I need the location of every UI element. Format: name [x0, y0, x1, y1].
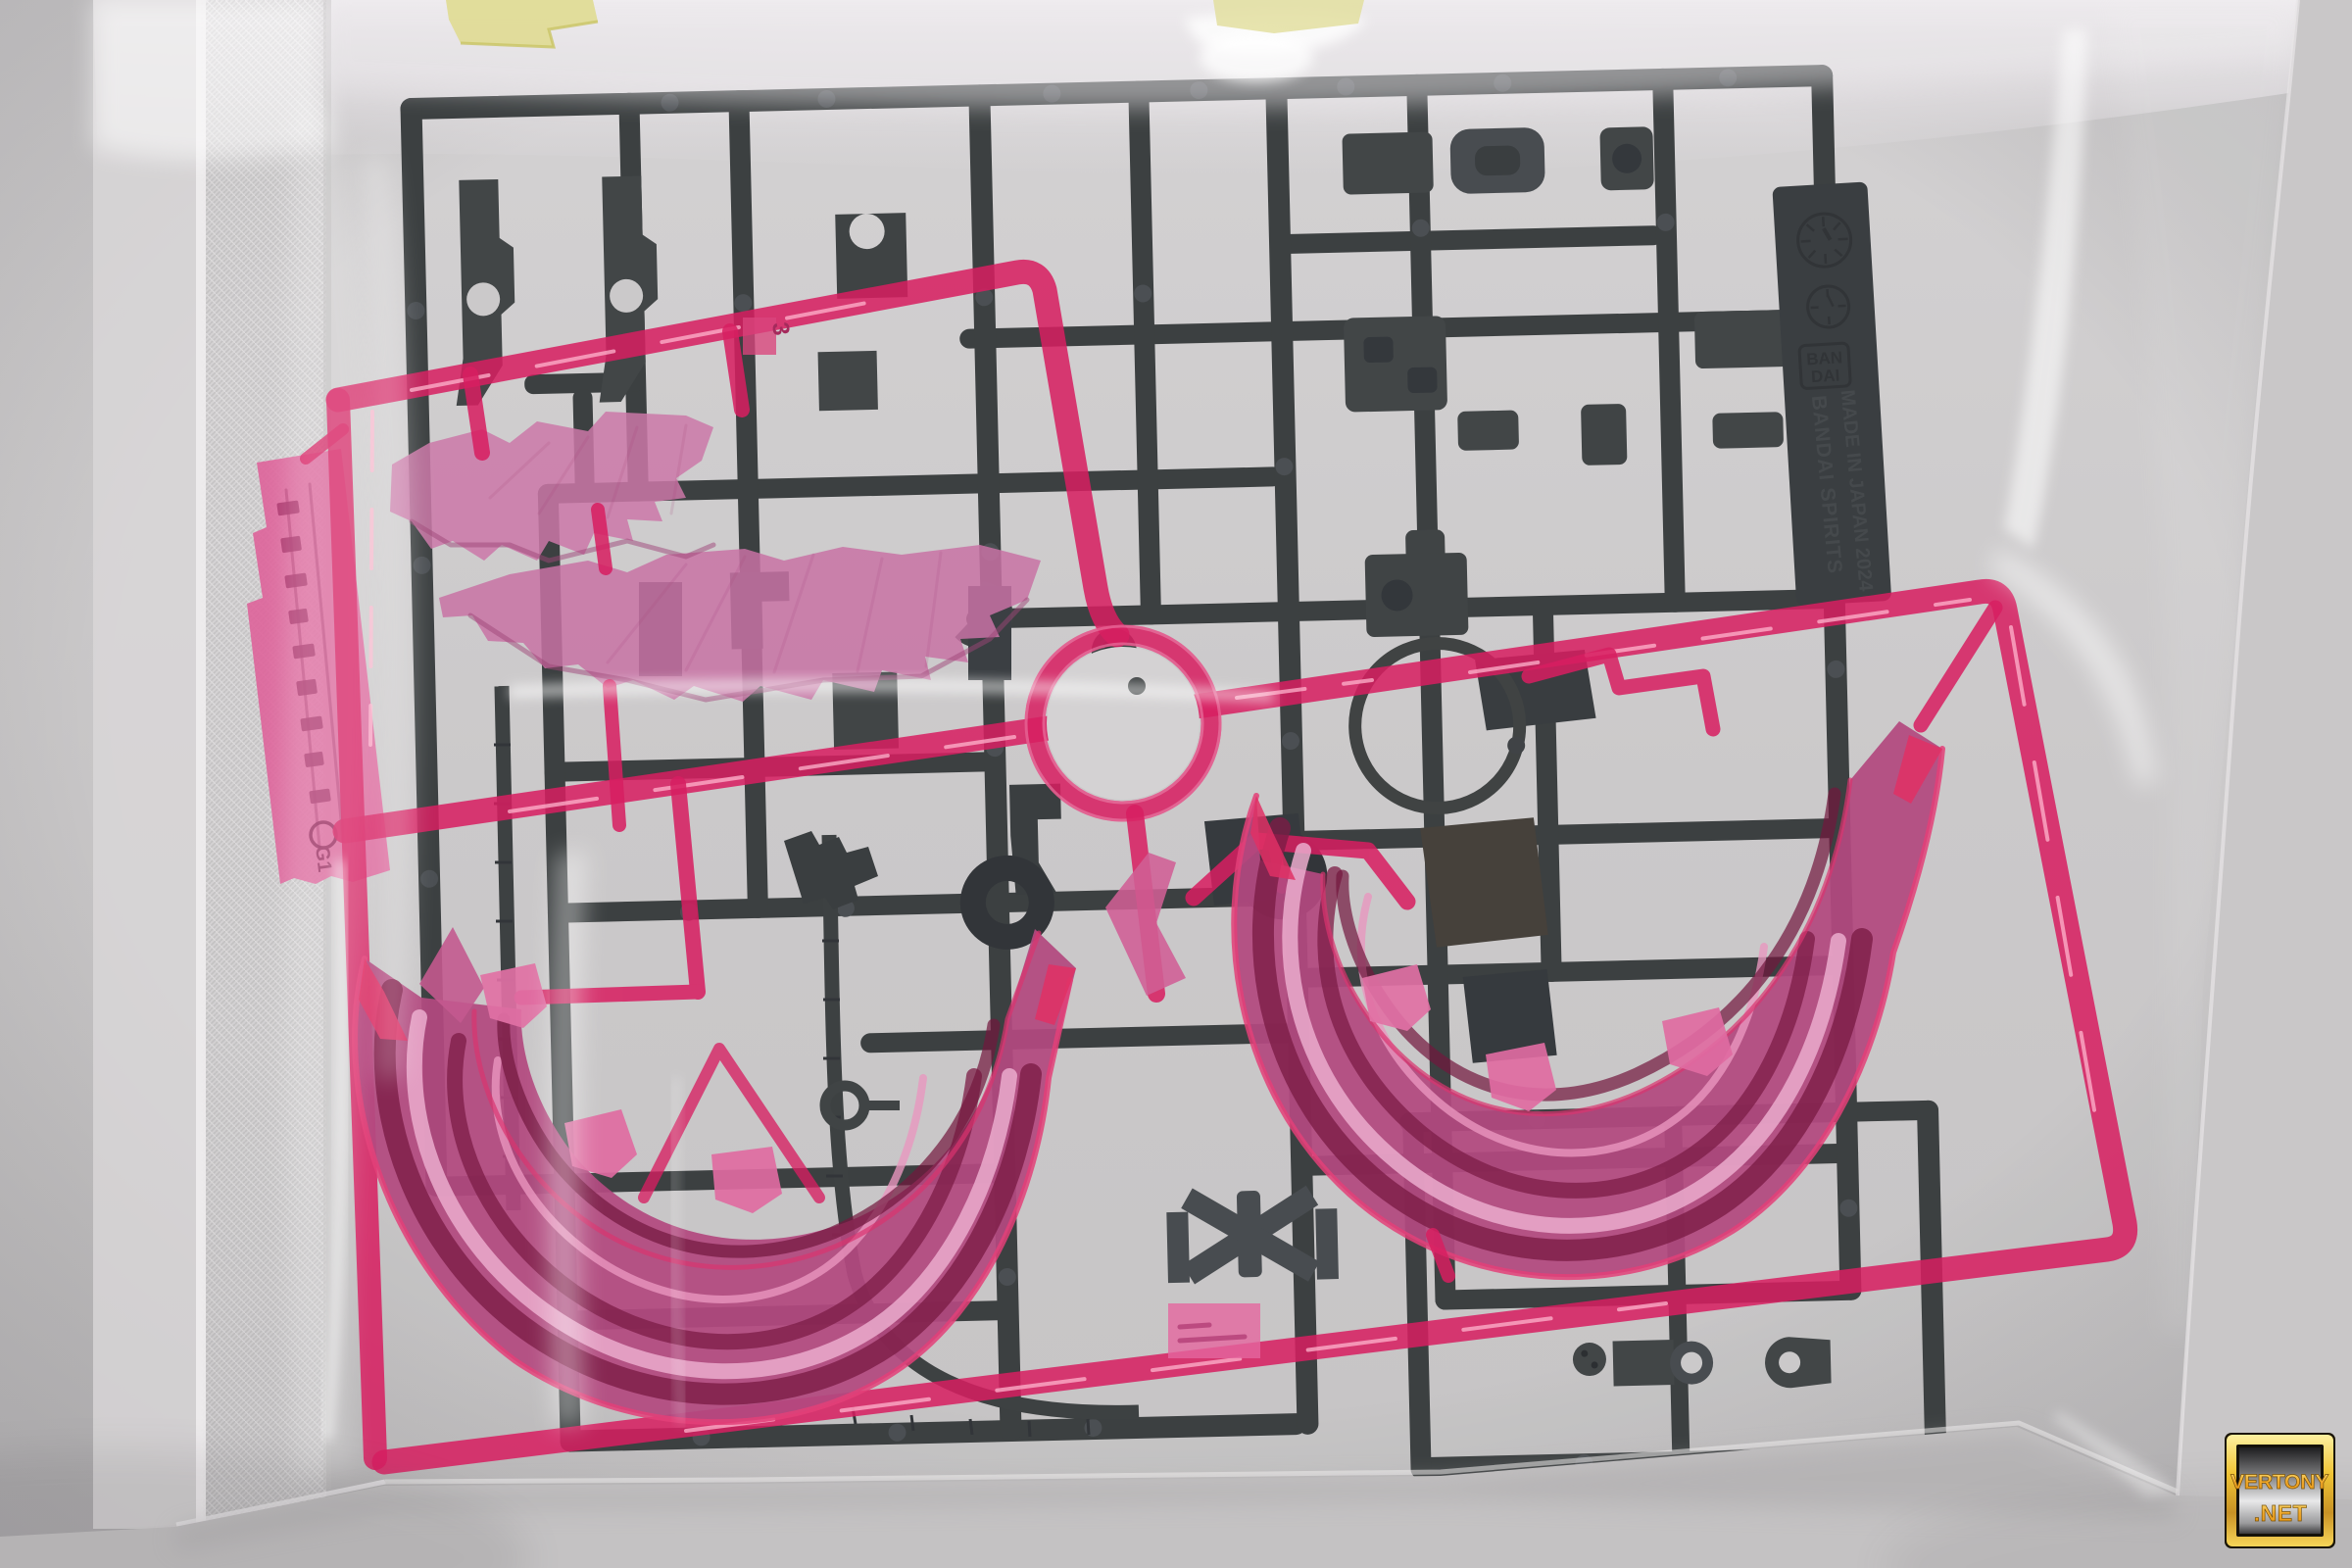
svg-text:VERTONY: VERTONY: [2230, 1470, 2328, 1494]
svg-text:.NET: .NET: [2254, 1500, 2307, 1526]
